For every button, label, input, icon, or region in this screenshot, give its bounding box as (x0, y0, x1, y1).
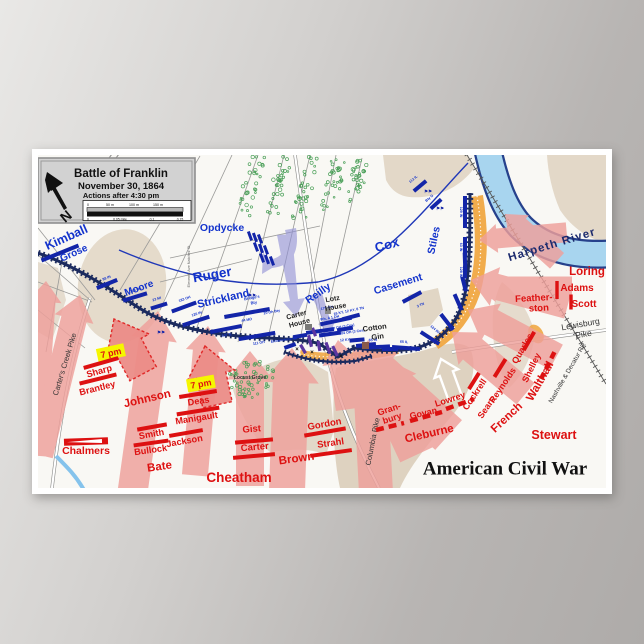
svg-text:Loring: Loring (569, 266, 605, 278)
svg-text:Eleventh Ave Natchez St.: Eleventh Ave Natchez St. (187, 245, 191, 288)
svg-text:American Civil War: American Civil War (423, 459, 588, 480)
svg-text:⚑⚑: ⚑⚑ (157, 330, 165, 335)
svg-text:Gin: Gin (371, 331, 385, 342)
svg-text:Actions after 4:30 pm: Actions after 4:30 pm (83, 191, 160, 200)
svg-text:Gist: Gist (242, 423, 262, 436)
svg-text:Locust Grove: Locust Grove (234, 375, 266, 381)
svg-text:65 IL: 65 IL (400, 340, 409, 344)
svg-text:100 m: 100 m (129, 203, 139, 207)
svg-text:Opdycke: Opdycke (200, 222, 245, 234)
svg-text:×: × (295, 347, 299, 353)
svg-text:Adams: Adams (560, 283, 594, 294)
svg-text:×: × (339, 354, 343, 360)
svg-text:ston: ston (529, 302, 550, 314)
svg-text:0: 0 (87, 218, 89, 222)
svg-text:⚑⚑: ⚑⚑ (424, 189, 432, 194)
svg-text:⚑⚑: ⚑⚑ (436, 206, 444, 211)
svg-text:Battle of Franklin: Battle of Franklin (74, 168, 168, 180)
svg-text:0: 0 (87, 203, 89, 207)
svg-text:0.05 mile: 0.05 mile (113, 218, 127, 222)
svg-text:Stewart: Stewart (531, 428, 577, 442)
svg-text:50 m: 50 m (106, 203, 114, 207)
svg-text:Cheatham: Cheatham (206, 470, 271, 485)
svg-text:150 m: 150 m (153, 203, 163, 207)
svg-text:0.1: 0.1 (150, 218, 155, 222)
svg-text:Scott: Scott (572, 299, 598, 310)
svg-text:128 IN: 128 IN (459, 267, 463, 278)
svg-text:129 IN: 129 IN (459, 207, 463, 218)
svg-text:0.15: 0.15 (177, 218, 184, 222)
svg-text:Chalmers: Chalmers (62, 445, 110, 457)
svg-text:63 IN: 63 IN (459, 243, 463, 252)
svg-text:×: × (310, 350, 314, 356)
